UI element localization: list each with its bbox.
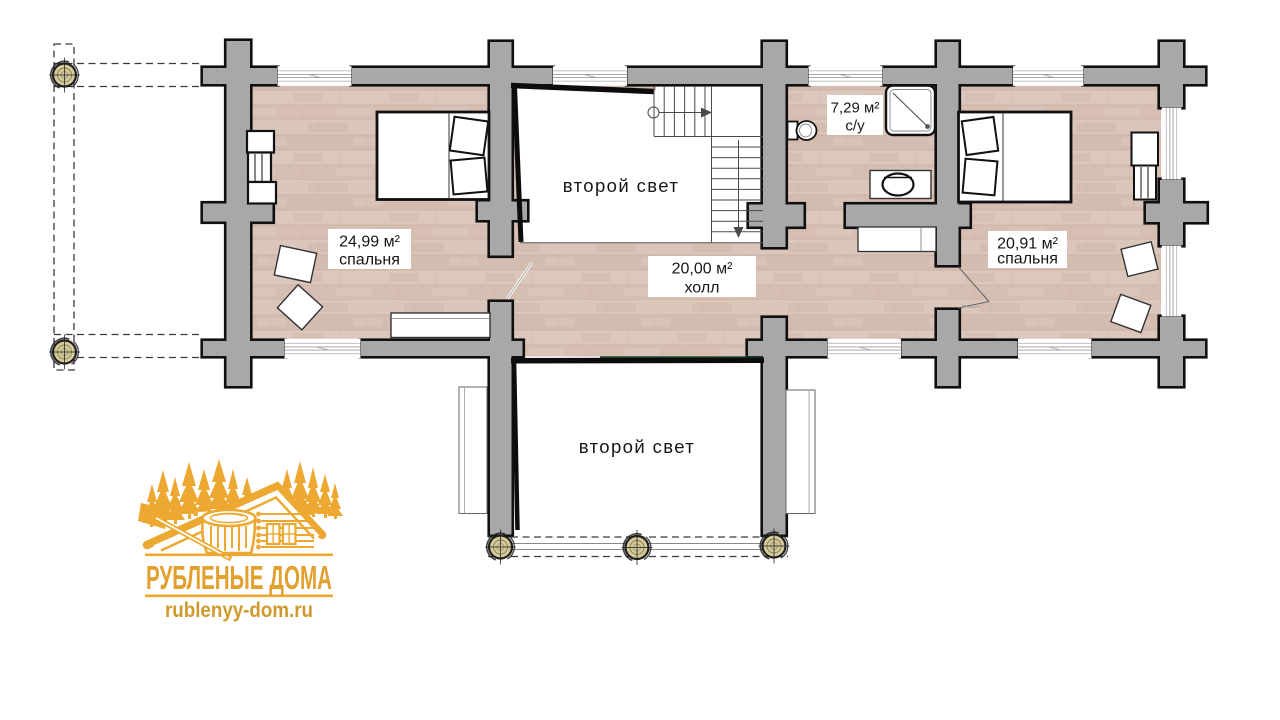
svg-text:второй свет: второй свет bbox=[579, 436, 695, 457]
svg-text:20,00 м²: 20,00 м² bbox=[672, 261, 733, 278]
svg-text:спальня: спальня bbox=[339, 252, 400, 269]
svg-text:холл: холл bbox=[684, 280, 719, 297]
svg-text:РУБЛЕНЫЕ ДОМА: РУБЛЕНЫЕ ДОМА bbox=[146, 559, 332, 596]
svg-text:с/у: с/у bbox=[845, 118, 865, 135]
svg-text:7,29 м²: 7,29 м² bbox=[831, 100, 880, 117]
svg-text:спальня: спальня bbox=[997, 251, 1058, 268]
svg-text:второй свет: второй свет bbox=[563, 175, 679, 196]
svg-text:rublenyy-dom.ru: rublenyy-dom.ru bbox=[165, 599, 313, 622]
svg-text:24,99 м²: 24,99 м² bbox=[339, 234, 400, 251]
